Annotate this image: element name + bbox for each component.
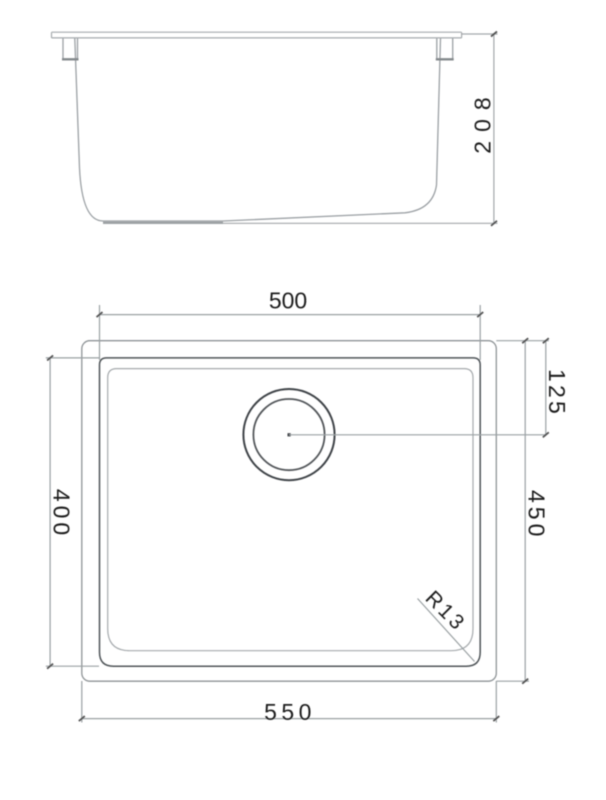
- svg-text:125: 125: [544, 369, 570, 417]
- svg-text:500: 500: [269, 288, 307, 314]
- svg-text:400: 400: [49, 489, 75, 539]
- svg-text:208: 208: [470, 88, 496, 153]
- svg-text:450: 450: [523, 490, 549, 540]
- svg-text:550: 550: [264, 699, 316, 725]
